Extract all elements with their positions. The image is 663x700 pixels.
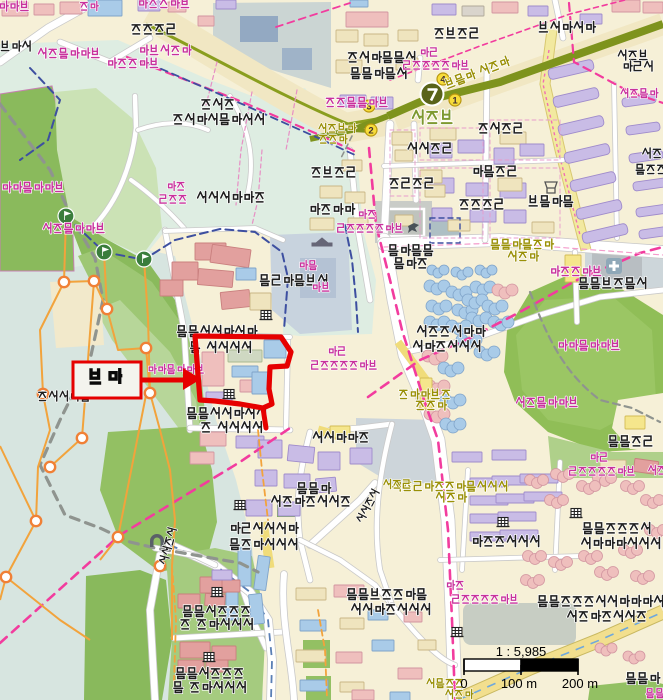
svg-text:1: 1: [452, 96, 458, 107]
svg-text:100 m: 100 m: [501, 676, 537, 691]
svg-text:0: 0: [460, 676, 467, 691]
svg-text:2: 2: [368, 126, 373, 137]
svg-text:1 : 5,985: 1 : 5,985: [496, 644, 547, 659]
svg-text:200 m: 200 m: [562, 676, 598, 691]
